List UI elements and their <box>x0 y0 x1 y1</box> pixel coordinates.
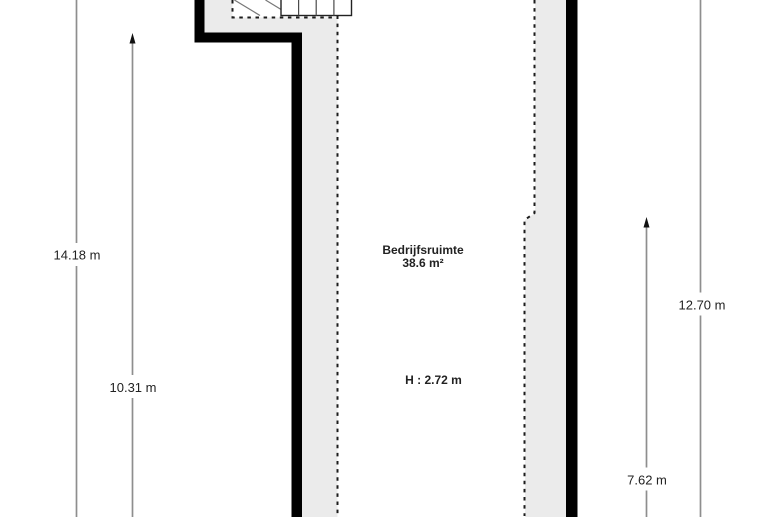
svg-text:7.62 m: 7.62 m <box>627 473 667 488</box>
svg-text:H : 2.72 m: H : 2.72 m <box>405 373 462 387</box>
svg-text:10.31 m: 10.31 m <box>110 380 157 395</box>
svg-text:12.70 m: 12.70 m <box>679 298 726 313</box>
svg-text:38.6 m²: 38.6 m² <box>402 256 443 270</box>
svg-text:Bedrijfsruimte: Bedrijfsruimte <box>382 243 464 257</box>
svg-text:14.18 m: 14.18 m <box>54 248 101 263</box>
